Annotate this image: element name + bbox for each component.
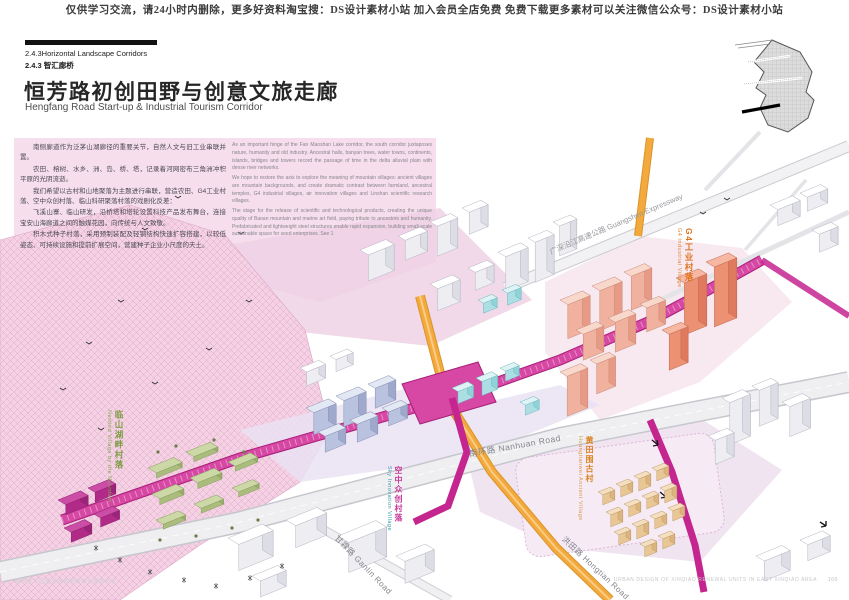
intro-paragraph-en: As an important hinge of the Fan Maoshan… [232, 142, 432, 241]
intro-zh-p1: 南侧廊道作为泛茅山湖廊径的重要关节，自然人文与旧工业串联并置。 [20, 143, 226, 164]
intro-zh-p5: 积木式种子村落，采用预制装配及轻钢结构快速扩容搭建，以较低姿态、可持续设施和提前… [20, 230, 226, 251]
page-number: 100 [828, 577, 838, 583]
intro-zh-p2: 农田、榕树、水乡、洲、岛、桥、塔，记录着河网密布三角洲冲积平原的光阴流逝。 [20, 165, 226, 186]
site-key-map [0, 0, 849, 600]
footer-right-text: URBAN DESIGN OF XINQIAO RENEWAL UNITS IN… [614, 577, 817, 583]
document-page: 仅供学习交流，请24小时内删除，更多好资料淘宝搜：DS设计素材小站 加入会员全店… [0, 0, 849, 600]
intro-en-p3: The stage for the release of scientific … [232, 208, 432, 239]
intro-zh-p3: 我们希望以古村和山地聚落为主题进行串联，营造农田、G4工业村落、空中众创村落、临… [20, 187, 226, 208]
label-sky-innovation-village: Sky Innovation Village 空中众创村落 [386, 466, 404, 536]
intro-zh-p4: 飞溪山寨、临山研发，沿桥塔和塔轮设置科技产品发布舞台，连接宝安山海廊道之间的触媒… [20, 208, 226, 229]
intro-paragraph-zh: 南侧廊道作为泛茅山湖廊径的重要关节，自然人文与旧工业串联并置。 农田、榕树、水乡… [20, 143, 226, 252]
intro-en-p1: As an important hinge of the Fan Maoshan… [232, 142, 432, 173]
label-g4-industrial-village: G4 Industrial Village G4工业村落 [676, 228, 695, 312]
footer-right: URBAN DESIGN OF XINQIAO RENEWAL UNITS IN… [600, 577, 838, 583]
label-huangtian-ancient-village: Huangtianwei Ancient Village 黄田围古村 [577, 436, 595, 508]
footer-left: 新桥东片区重点城市更新单元城市设计 [15, 577, 117, 585]
intro-en-p2: We hope to restore the axis to explore t… [232, 175, 432, 206]
label-mountain-lake-village: Nestled Village by the Mountain 临山湖畔村落 [106, 410, 125, 510]
